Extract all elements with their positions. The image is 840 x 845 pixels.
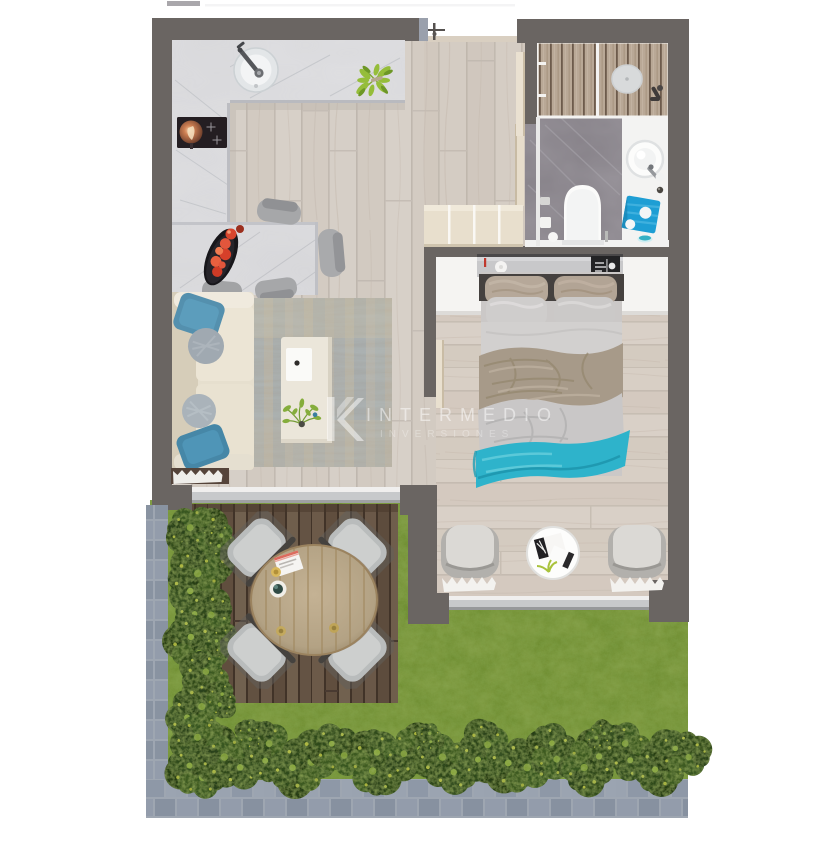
svg-text:INVERSIONES: INVERSIONES [380, 429, 514, 440]
svg-text:INTERMEDIO: INTERMEDIO [366, 405, 559, 425]
